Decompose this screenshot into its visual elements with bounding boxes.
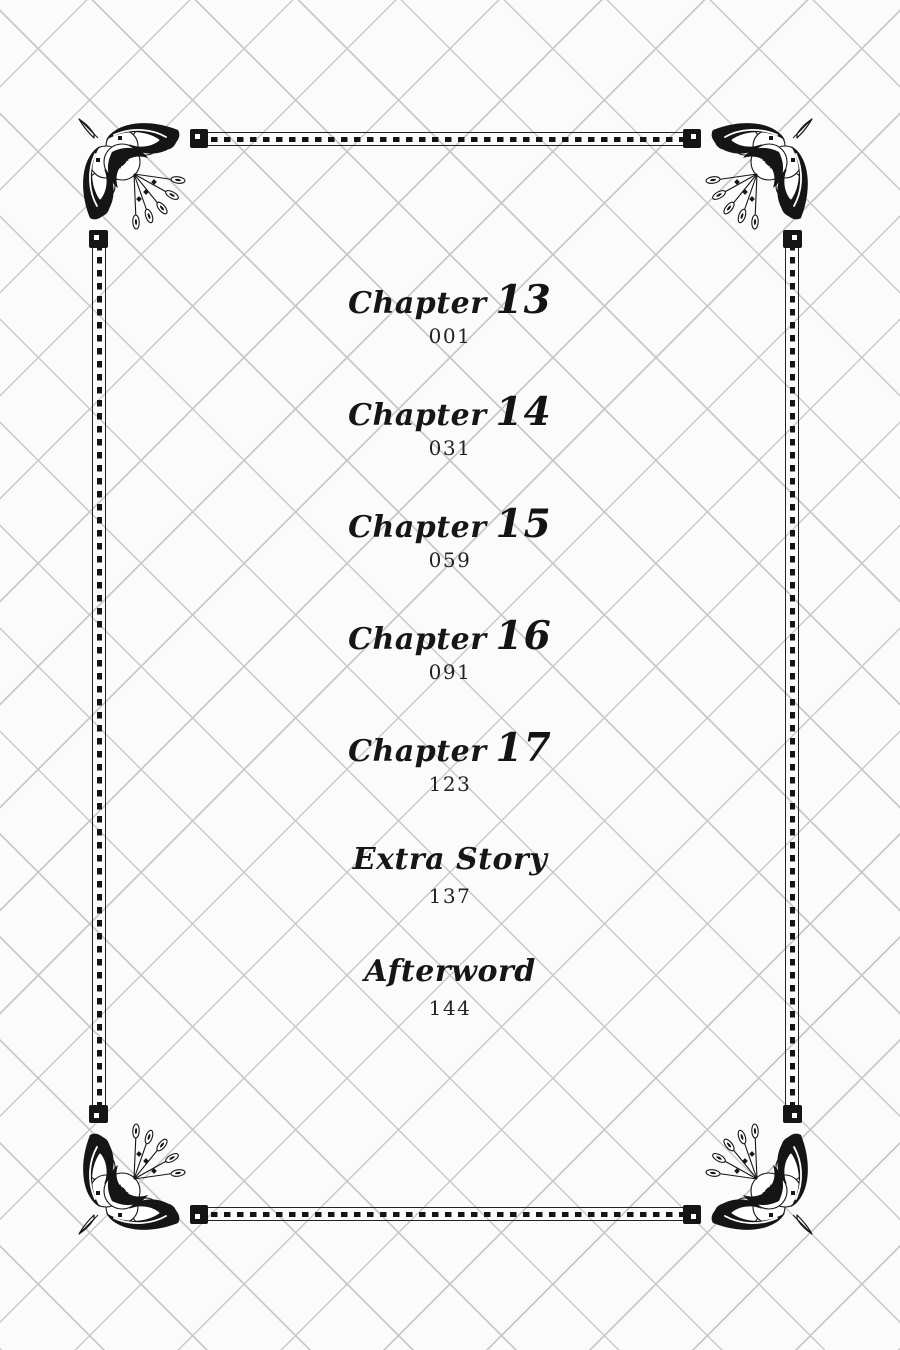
toc-entry-chapter-15[interactable]: Chapter 15 059 [348, 501, 552, 613]
corner-flourish-top-left-icon [78, 118, 208, 248]
toc-list: Chapter 13 001 Chapter 14 031 Chapter 15… [0, 277, 900, 1061]
toc-entry-chapter-14[interactable]: Chapter 14 031 [348, 389, 552, 501]
chapter-number: 14 [496, 389, 552, 435]
chapter-label: Afterword [364, 949, 536, 995]
chapter-page-number: 059 [429, 547, 472, 573]
corner-flourish-top-right-icon [683, 118, 813, 248]
chapter-label: Chapter [348, 281, 486, 327]
chapter-label: Extra Story [353, 837, 548, 883]
chapter-title: Afterword [364, 949, 536, 995]
chapter-page-number: 031 [429, 435, 472, 461]
chapter-page-number: 123 [429, 771, 472, 797]
chapter-number: 16 [496, 613, 552, 659]
chapter-title: Chapter 15 [348, 501, 552, 547]
chapter-page-number: 091 [429, 659, 472, 685]
table-of-contents-page: Chapter 13 001 Chapter 14 031 Chapter 15… [0, 0, 900, 1350]
toc-entry-extra-story[interactable]: Extra Story 137 [353, 837, 548, 949]
chapter-page-number: 144 [429, 995, 472, 1021]
toc-entry-chapter-17[interactable]: Chapter 17 123 [348, 725, 552, 837]
frame-border-top [198, 132, 698, 146]
corner-flourish-bottom-left-icon [78, 1105, 208, 1235]
chapter-title: Chapter 14 [348, 389, 552, 435]
chapter-label: Chapter [348, 617, 486, 663]
chapter-page-number: 001 [429, 323, 472, 349]
chapter-title: Chapter 13 [348, 277, 552, 323]
chapter-number: 17 [496, 725, 552, 771]
chapter-title: Chapter 16 [348, 613, 552, 659]
toc-entry-chapter-13[interactable]: Chapter 13 001 [348, 277, 552, 389]
toc-entry-chapter-16[interactable]: Chapter 16 091 [348, 613, 552, 725]
toc-entry-afterword[interactable]: Afterword 144 [364, 949, 536, 1061]
chapter-title: Chapter 17 [348, 725, 552, 771]
chapter-number: 15 [496, 501, 552, 547]
frame-border-bottom [198, 1207, 698, 1221]
chapter-page-number: 137 [429, 883, 472, 909]
chapter-label: Chapter [348, 729, 486, 775]
chapter-label: Chapter [348, 393, 486, 439]
chapter-title: Extra Story [353, 837, 548, 883]
corner-flourish-bottom-right-icon [683, 1105, 813, 1235]
chapter-number: 13 [496, 277, 552, 323]
chapter-label: Chapter [348, 505, 486, 551]
